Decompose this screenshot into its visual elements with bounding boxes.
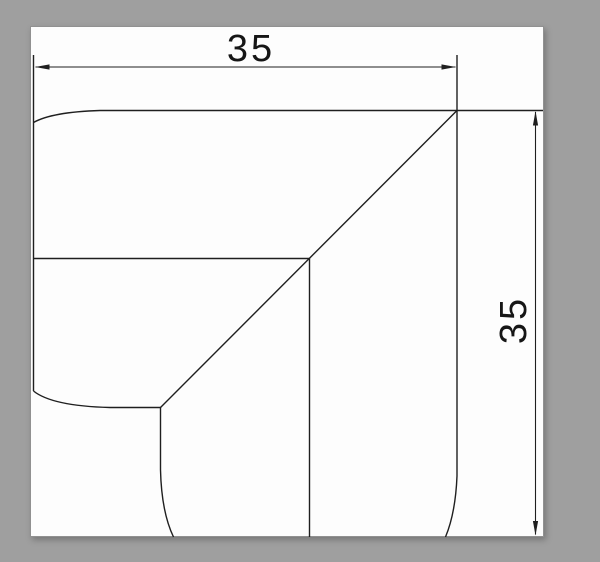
left-arm-bottom-edge <box>34 391 161 408</box>
inner-corner-vertical-edge <box>161 408 174 538</box>
dim-arrow-left-icon <box>35 64 50 69</box>
drawing-viewport: 35 35 <box>0 0 600 562</box>
dim-arrow-down-icon <box>533 521 538 536</box>
right-outer-edge <box>446 55 458 537</box>
cad-drawing: 35 35 <box>0 0 600 562</box>
horizontal-dimension-label: 35 <box>227 28 275 70</box>
top-outer-edge <box>34 111 544 123</box>
vertical-dimension-label: 35 <box>493 296 535 344</box>
dim-arrow-up-icon <box>533 111 538 126</box>
dim-arrow-right-icon <box>442 64 457 69</box>
